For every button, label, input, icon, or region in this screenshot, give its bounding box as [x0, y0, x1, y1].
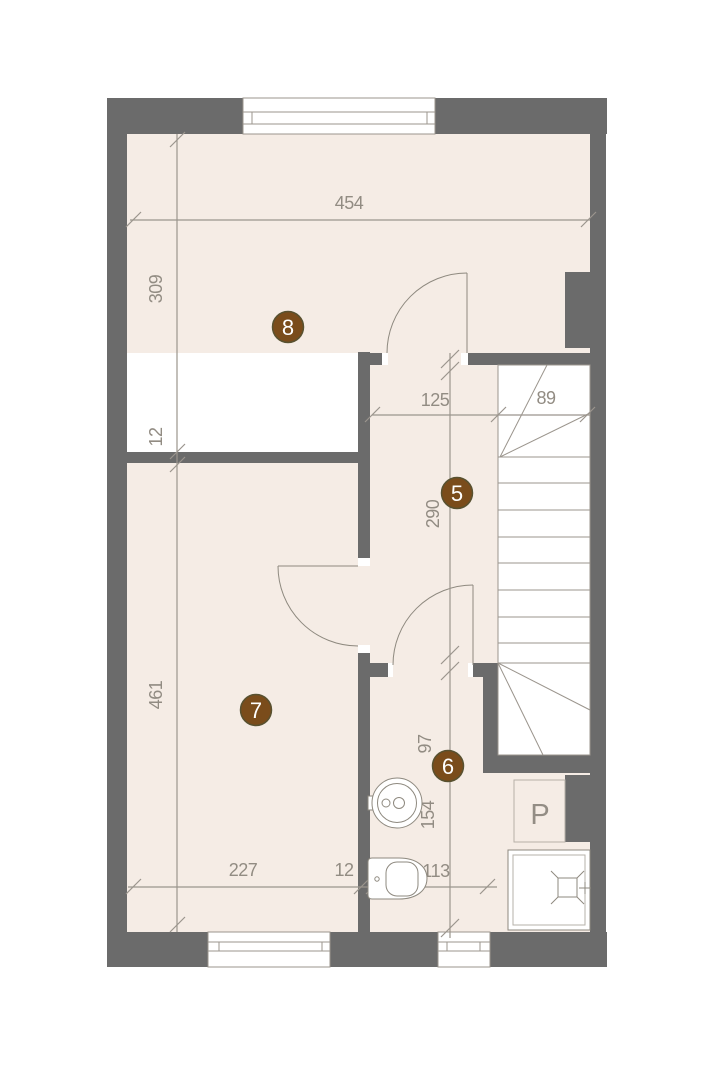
room-marker-7: 7	[241, 695, 272, 726]
room-marker-5: 5	[442, 478, 473, 509]
dim-label-97: 97	[415, 734, 435, 754]
window-bottom-right	[438, 932, 490, 967]
room8-floor	[127, 134, 590, 353]
wall-bottom-left	[107, 932, 208, 967]
door-jamb	[358, 645, 370, 653]
floor-plan: 454 309 12 461 125 89	[0, 0, 717, 1080]
wall-bottom-middle	[330, 932, 438, 967]
wall-right	[590, 134, 606, 967]
door-jamb	[388, 663, 393, 677]
wall-hall-left	[358, 353, 382, 365]
wall-top-left	[107, 98, 243, 134]
wall-room8-room7	[127, 452, 358, 463]
dim-label-12-upper: 12	[146, 427, 166, 447]
room-marker-6: 6	[433, 751, 464, 782]
wall-under-stair	[498, 755, 590, 773]
wall-bath-left	[370, 663, 388, 677]
dim-label-12-lower: 12	[334, 860, 354, 880]
wall-bottom-right	[490, 932, 607, 967]
dim-label-89: 89	[536, 388, 556, 408]
room6-label: 6	[442, 754, 454, 779]
dim-label-227: 227	[229, 860, 258, 880]
room8-label: 8	[282, 315, 294, 340]
stair-outline	[498, 365, 590, 755]
door-jamb	[461, 353, 468, 365]
floor-plan-drawing: 454 309 12 461 125 89	[0, 0, 717, 1080]
window-top	[243, 98, 435, 134]
shower-symbol	[508, 850, 591, 930]
door-jamb	[358, 558, 370, 566]
wall-left	[107, 134, 127, 967]
window-bottom-left	[208, 932, 330, 967]
wall-bath-stair	[483, 663, 498, 773]
door-jamb	[382, 353, 388, 365]
toilet-symbol	[368, 858, 427, 899]
dim-label-461: 461	[146, 680, 166, 709]
door-opening-bathroom	[393, 663, 468, 677]
dim-label-309: 309	[146, 274, 166, 303]
wall-washer-side	[565, 775, 590, 842]
bathroom-floor-upper	[370, 677, 483, 773]
wall-hall-right	[468, 353, 590, 365]
wall-top-right	[435, 98, 607, 134]
washer-label: P	[530, 799, 549, 831]
dim-label-125: 125	[421, 390, 450, 410]
door-jamb	[468, 663, 473, 677]
staircase	[498, 365, 590, 755]
room5-label: 5	[451, 481, 463, 506]
door-opening-room7	[358, 566, 370, 645]
room7-label: 7	[250, 698, 262, 723]
dim-label-454: 454	[335, 193, 364, 213]
washing-machine-symbol: P	[514, 780, 565, 842]
dim-label-290: 290	[423, 499, 443, 528]
wall-pillar	[565, 272, 590, 348]
room-marker-8: 8	[273, 312, 304, 343]
